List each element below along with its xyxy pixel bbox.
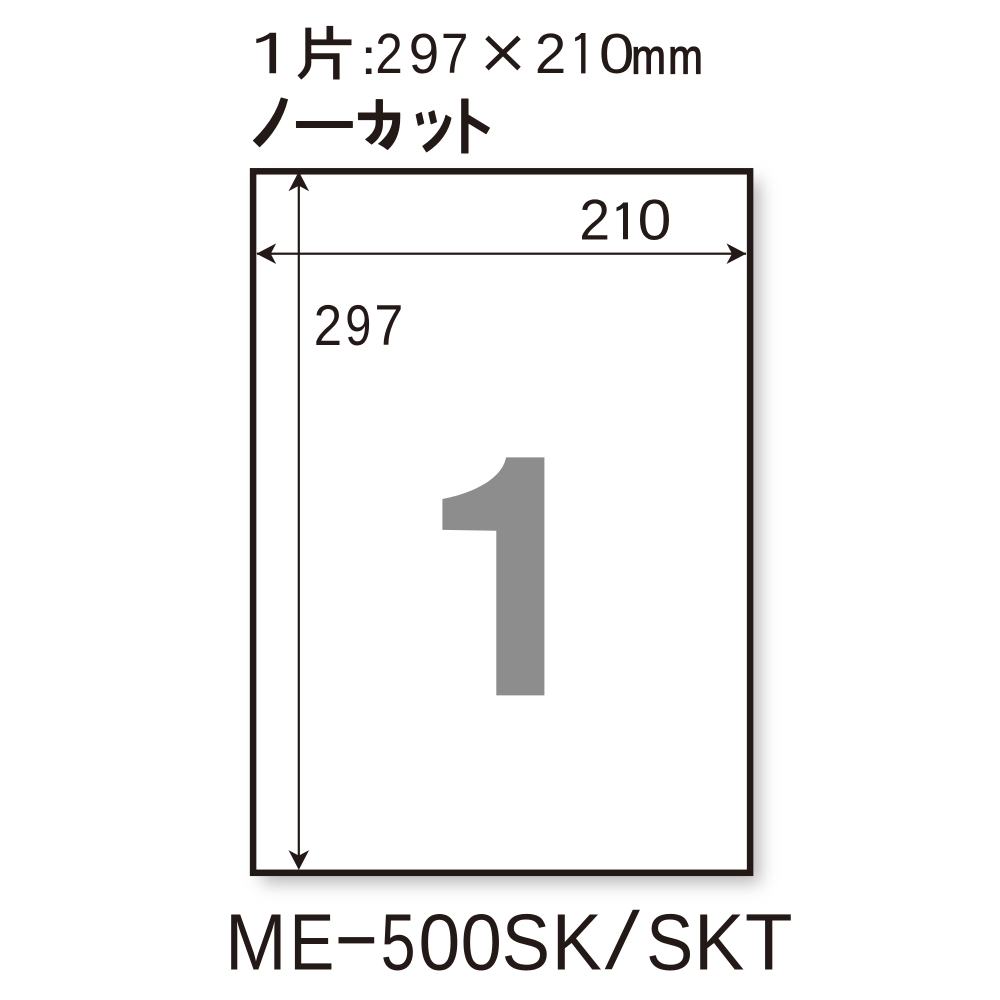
svg-text:5: 5: [381, 898, 416, 987]
svg-text:0: 0: [638, 189, 672, 252]
svg-text:2: 2: [535, 23, 566, 86]
svg-text:2: 2: [579, 188, 610, 252]
svg-text:9: 9: [409, 21, 439, 85]
svg-text:2: 2: [375, 23, 402, 86]
svg-text:m: m: [631, 29, 666, 84]
svg-text:9: 9: [345, 295, 371, 358]
svg-text:K: K: [552, 898, 602, 987]
svg-text:m: m: [668, 29, 703, 84]
svg-text:7: 7: [441, 23, 468, 86]
svg-text:7: 7: [374, 293, 403, 358]
svg-text:M: M: [225, 898, 286, 987]
svg-text:0: 0: [461, 898, 502, 987]
svg-text:S: S: [646, 897, 693, 986]
svg-text:0: 0: [599, 21, 635, 85]
svg-text:E: E: [289, 897, 334, 987]
svg-text:K: K: [694, 899, 744, 987]
svg-text:S: S: [502, 898, 550, 987]
svg-text:0: 0: [419, 898, 461, 987]
svg-text:2: 2: [314, 294, 342, 357]
svg-text:T: T: [745, 897, 793, 987]
